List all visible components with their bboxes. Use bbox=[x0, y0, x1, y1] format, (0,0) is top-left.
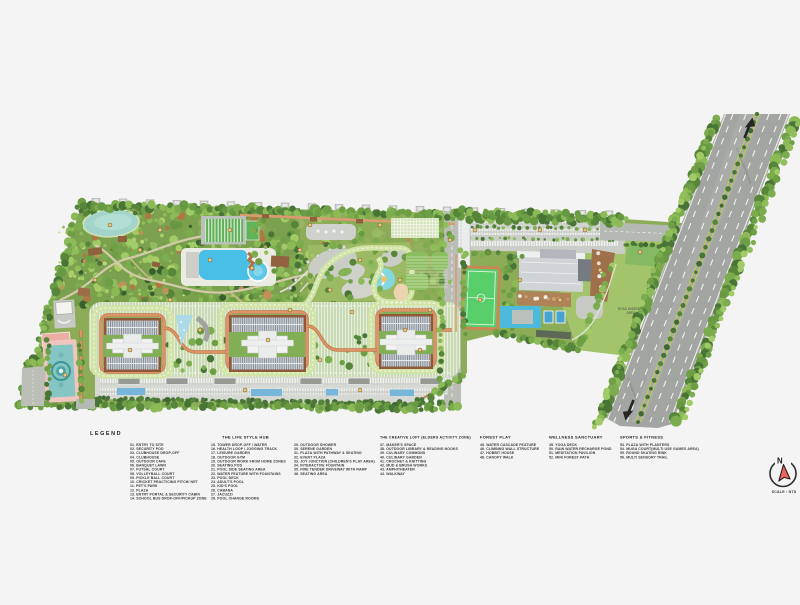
svg-text:THE LIFE STYLE HUB: THE LIFE STYLE HUB bbox=[222, 435, 269, 440]
svg-text:36. SEATING AREA: 36. SEATING AREA bbox=[294, 472, 328, 476]
svg-text:14. SCHOOL BUS DROP-OFF/PICKUP: 14. SCHOOL BUS DROP-OFF/PICKUP ZONE bbox=[130, 497, 207, 501]
svg-text:56. MULTI SENSORY TRAIL: 56. MULTI SENSORY TRAIL bbox=[620, 455, 669, 459]
svg-text:LEGEND: LEGEND bbox=[90, 431, 122, 437]
svg-text:SPORTS & FITNESS: SPORTS & FITNESS bbox=[620, 435, 663, 440]
svg-text:52. MINI FOREST PATH: 52. MINI FOREST PATH bbox=[549, 455, 590, 459]
svg-text:SCALE : NTS: SCALE : NTS bbox=[772, 490, 797, 494]
svg-text:N: N bbox=[777, 457, 783, 466]
svg-text:FOREST PLAY: FOREST PLAY bbox=[480, 435, 511, 440]
svg-text:28. POOL CHANGE ROOMS: 28. POOL CHANGE ROOMS bbox=[211, 497, 260, 501]
svg-text:WELLNESS SANCTUARY: WELLNESS SANCTUARY bbox=[549, 435, 603, 440]
svg-text:THE CREATIVE LOFT (ELDERS ACTI: THE CREATIVE LOFT (ELDERS ACTIVITY ZONE) bbox=[380, 436, 471, 440]
svg-text:48. CANOPY WALK: 48. CANOPY WALK bbox=[480, 455, 514, 459]
svg-text:44. WALKWAY: 44. WALKWAY bbox=[380, 472, 405, 476]
